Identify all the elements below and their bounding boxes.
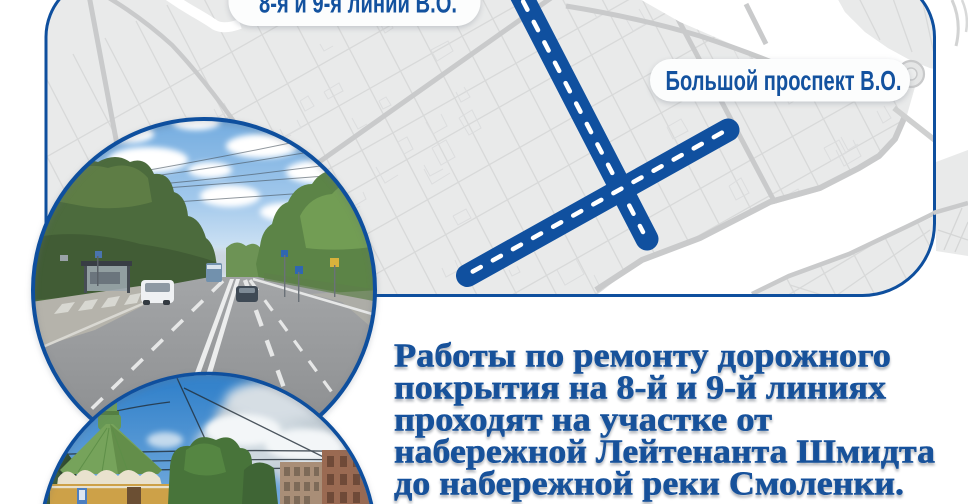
- svg-text:8-я и 9-я линии В.О.: 8-я и 9-я линии В.О.: [259, 0, 457, 19]
- svg-text:Большой проспект В.О.: Большой проспект В.О.: [666, 65, 902, 96]
- svg-text:до набережной реки Смоленки.: до набережной реки Смоленки.: [394, 466, 904, 503]
